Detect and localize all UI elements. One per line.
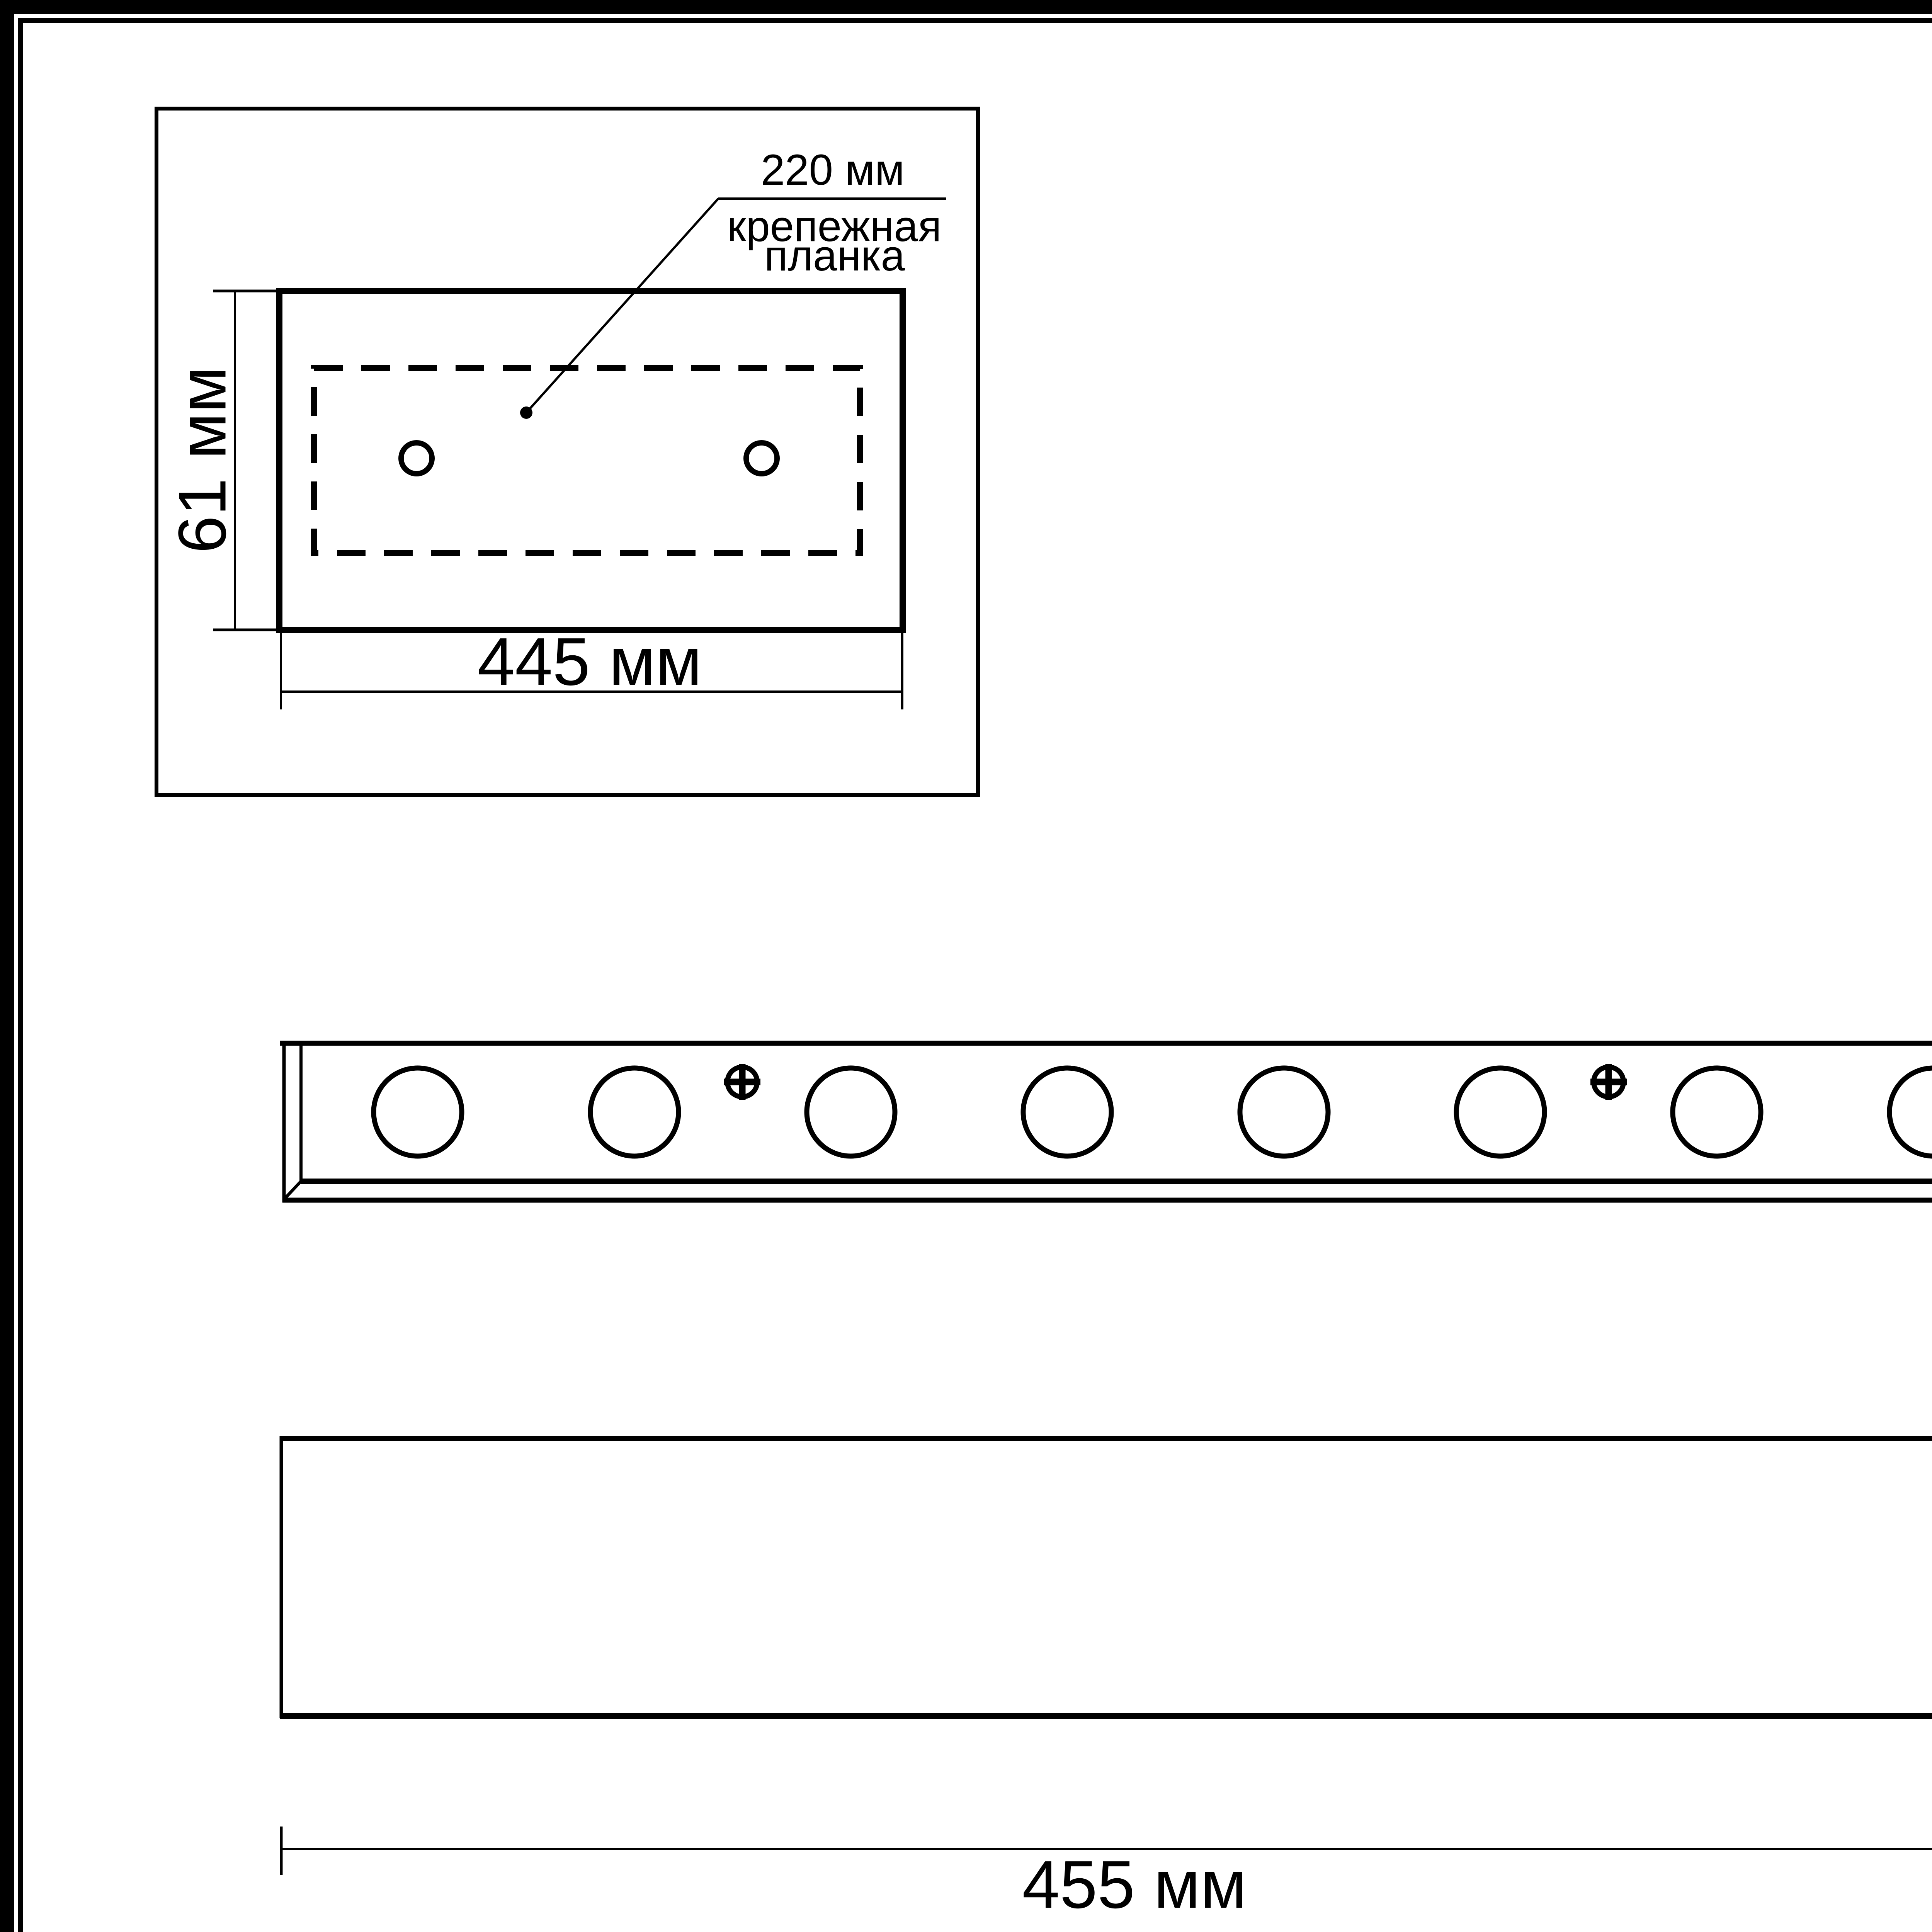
bar-bevel-left bbox=[283, 1181, 301, 1200]
mount-hole-left bbox=[401, 443, 432, 474]
lamp-hole-6 bbox=[1456, 1068, 1544, 1156]
dim-label-front-width: 455 мм bbox=[1022, 1851, 1247, 1919]
screw-head-right-icon bbox=[1590, 1064, 1627, 1100]
lamp-hole-5 bbox=[1240, 1068, 1328, 1156]
mount-plate-label-line2: планка bbox=[764, 234, 905, 277]
lamp-hole-2 bbox=[590, 1068, 679, 1156]
dim-label-canopy-height: 61 мм bbox=[169, 366, 236, 553]
front-view-group bbox=[280, 1430, 1932, 1875]
technical-drawing-canvas bbox=[0, 0, 1932, 1932]
lamp-hole-3 bbox=[807, 1068, 895, 1156]
lamp-hole-4 bbox=[1023, 1068, 1111, 1156]
side-view-group bbox=[280, 805, 1932, 1209]
leader-line-diagonal bbox=[526, 199, 718, 413]
dim-label-hole-spacing: 220 мм bbox=[761, 148, 905, 192]
lamp-hole-8 bbox=[1889, 1068, 1932, 1156]
lamp-hole-7 bbox=[1673, 1068, 1761, 1156]
dim-label-canopy-width: 445 мм bbox=[477, 628, 702, 696]
screw-head-left-icon bbox=[724, 1064, 760, 1100]
mount-hole-right bbox=[746, 443, 777, 474]
lamp-hole-1 bbox=[374, 1068, 462, 1156]
